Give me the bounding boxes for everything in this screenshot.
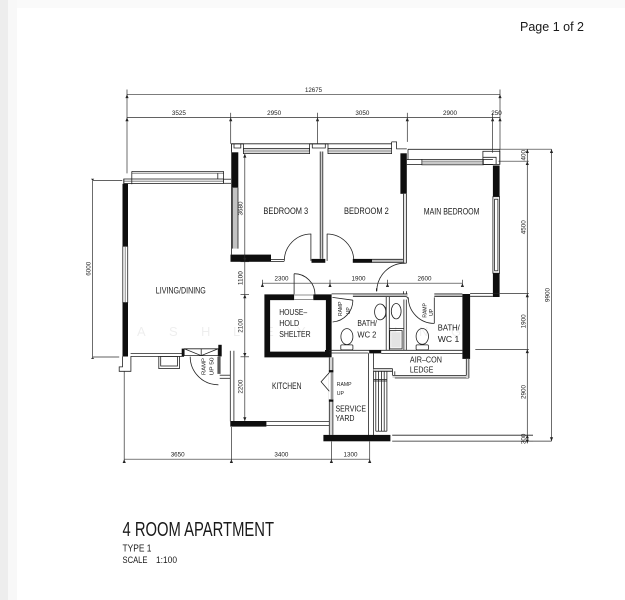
svg-text:MAIN BEDROOM: MAIN BEDROOM [424, 207, 480, 218]
svg-text:4500: 4500 [521, 220, 528, 234]
svg-text:RAMP: RAMP [422, 303, 428, 318]
svg-text:BEDROOM 2: BEDROOM 2 [344, 206, 389, 217]
svg-text:Page 1 of 2: Page 1 of 2 [520, 19, 584, 34]
svg-text:RAMP: RAMP [338, 302, 344, 317]
svg-text:3650: 3650 [171, 452, 185, 459]
svg-text:UP: UP [429, 309, 435, 316]
svg-text:H: H [201, 324, 210, 339]
svg-text:3050: 3050 [355, 110, 369, 117]
svg-text:YARD: YARD [336, 413, 355, 423]
svg-text:2600: 2600 [418, 276, 432, 283]
svg-text:1100: 1100 [238, 271, 245, 285]
svg-text:LIVING/DINING: LIVING/DINING [156, 286, 206, 297]
svg-text:1900: 1900 [352, 276, 366, 283]
svg-text:LEDGE: LEDGE [410, 365, 434, 375]
svg-text:TYPE 1: TYPE 1 [123, 543, 152, 554]
svg-text:3680: 3680 [238, 201, 245, 215]
svg-text:RAMP: RAMP [201, 358, 207, 375]
svg-text:WC 1: WC 1 [438, 334, 460, 344]
svg-text:RAMP: RAMP [337, 382, 352, 388]
svg-text:HOUSE–: HOUSE– [279, 307, 307, 317]
svg-text:2900: 2900 [521, 385, 528, 399]
svg-text:UP: UP [337, 391, 344, 397]
svg-text:BEDROOM 3: BEDROOM 3 [263, 206, 308, 217]
svg-text:2900: 2900 [443, 110, 457, 117]
svg-text:3525: 3525 [172, 110, 186, 117]
svg-text:2300: 2300 [275, 276, 289, 283]
svg-text:300: 300 [521, 433, 528, 444]
svg-text:WC 2: WC 2 [357, 330, 376, 340]
svg-text:12675: 12675 [305, 87, 322, 94]
svg-text:BATH/: BATH/ [438, 322, 461, 332]
svg-text:SCALE: SCALE [123, 555, 148, 565]
svg-text:S: S [169, 324, 178, 339]
svg-text:HOLD: HOLD [279, 318, 299, 328]
svg-text:UP: UP [346, 307, 352, 314]
svg-text:BATH/: BATH/ [357, 318, 377, 328]
svg-text:SHELTER: SHELTER [279, 329, 311, 339]
svg-text:3400: 3400 [274, 452, 288, 459]
svg-text:UP 50: UP 50 [210, 357, 216, 376]
svg-text:400: 400 [521, 150, 528, 161]
svg-text:9900: 9900 [544, 288, 551, 302]
svg-text:2100: 2100 [238, 318, 245, 332]
svg-text:1900: 1900 [521, 314, 528, 328]
svg-text:6000: 6000 [85, 261, 92, 275]
svg-text:KITCHEN: KITCHEN [272, 381, 302, 392]
svg-text:1:100: 1:100 [156, 555, 177, 565]
svg-text:2200: 2200 [238, 379, 245, 393]
svg-text:4 ROOM APARTMENT: 4 ROOM APARTMENT [123, 518, 275, 541]
svg-text:2950: 2950 [267, 110, 281, 117]
svg-text:AIR–CON: AIR–CON [410, 354, 442, 364]
svg-text:A: A [137, 324, 146, 339]
svg-text:1300: 1300 [344, 452, 358, 459]
